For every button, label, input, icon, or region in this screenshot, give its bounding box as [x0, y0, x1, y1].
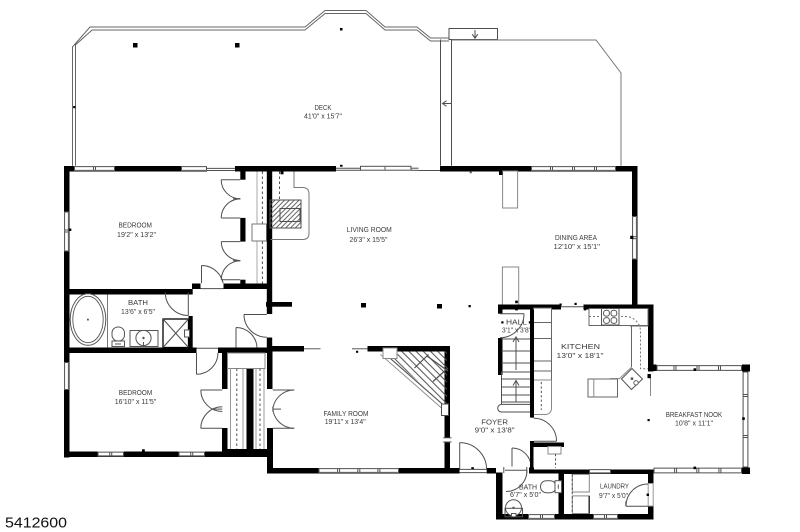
svg-text:19'2" x 13'2": 19'2" x 13'2" [117, 230, 156, 239]
svg-text:41'0" x 15'7": 41'0" x 15'7" [304, 111, 342, 120]
svg-text:6'7" x 5'0": 6'7" x 5'0" [510, 490, 541, 499]
svg-text:BATH: BATH [128, 298, 148, 307]
svg-text:9'0" x 13'8": 9'0" x 13'8" [475, 426, 515, 435]
svg-text:DINING AREA: DINING AREA [555, 233, 597, 242]
svg-text:KITCHEN: KITCHEN [561, 342, 600, 351]
svg-text:9'7" x 5'0": 9'7" x 5'0" [599, 491, 628, 500]
svg-text:16'10" x 11'5": 16'10" x 11'5" [115, 397, 157, 406]
svg-text:26'3" x 15'5": 26'3" x 15'5" [350, 235, 388, 244]
svg-text:13'0" x 18'1": 13'0" x 18'1" [557, 351, 604, 360]
svg-text:LIVING ROOM: LIVING ROOM [347, 225, 392, 234]
svg-text:13'6" x 6'5": 13'6" x 6'5" [121, 307, 155, 316]
svg-text:LAUNDRY: LAUNDRY [600, 482, 629, 491]
svg-text:5412600: 5412600 [5, 515, 67, 532]
svg-text:3'1" x 3'8": 3'1" x 3'8" [502, 326, 531, 335]
svg-text:10'8" x 11'1": 10'8" x 11'1" [675, 418, 713, 427]
svg-text:12'10" x 15'1": 12'10" x 15'1" [554, 242, 601, 251]
svg-text:19'11" x 13'4": 19'11" x 13'4" [325, 417, 366, 426]
svg-text:BEDROOM: BEDROOM [118, 221, 152, 230]
